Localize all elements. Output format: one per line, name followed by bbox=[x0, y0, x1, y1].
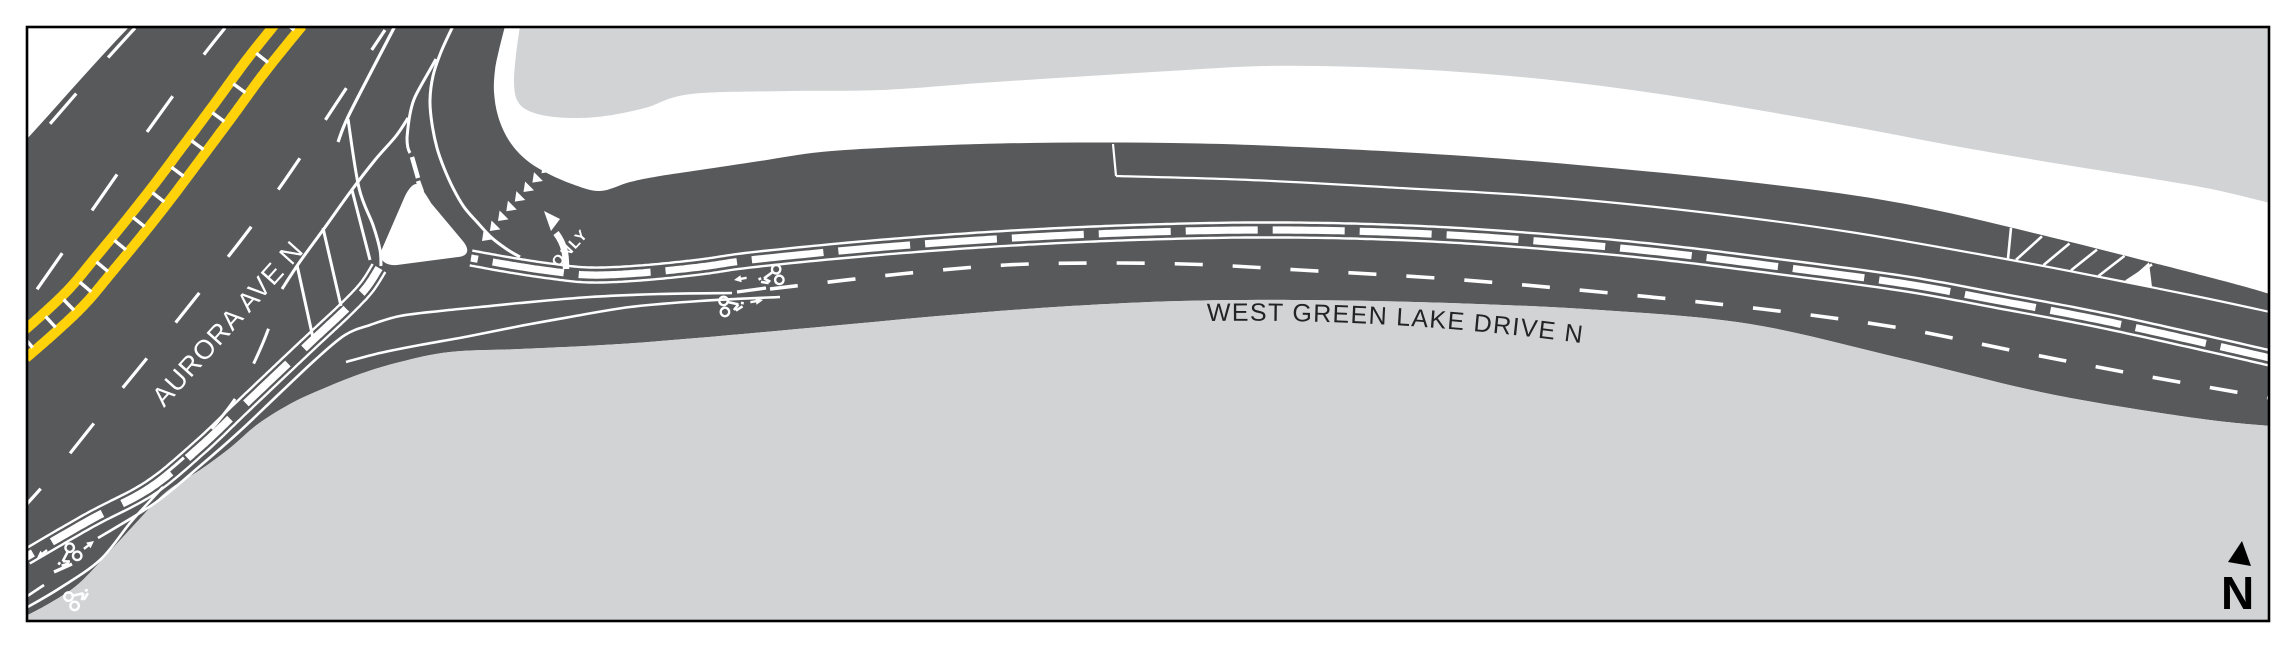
svg-text:N: N bbox=[2221, 567, 2254, 619]
